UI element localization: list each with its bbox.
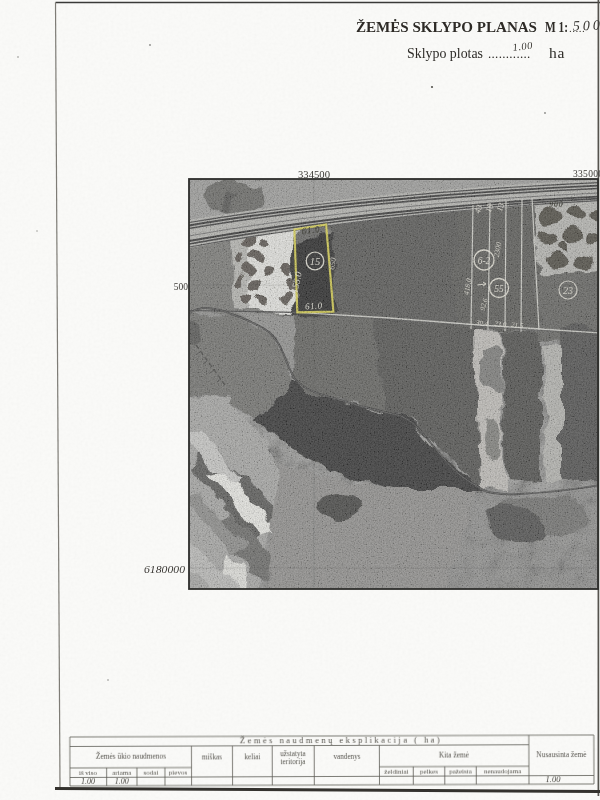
svg-text:Žemės naudmenų eksplikacija (: Žemės naudmenų eksplikacija ( ha) xyxy=(240,735,440,746)
svg-text:1.00: 1.00 xyxy=(81,777,95,786)
svg-text:vandenys: vandenys xyxy=(333,753,360,761)
svg-text:keliai: keliai xyxy=(244,753,260,761)
svg-text:ariama: ariama xyxy=(112,769,132,777)
svg-text:sodai: sodai xyxy=(144,769,159,777)
svg-text:ŽEMĖS SKLYPO PLANAS: ŽEMĖS SKLYPO PLANAS xyxy=(356,19,537,35)
svg-text:ha: ha xyxy=(549,44,565,61)
svg-text:pievos: pievos xyxy=(169,769,188,777)
svg-text:Nusausinta žemė: Nusausinta žemė xyxy=(536,750,587,759)
svg-text:pažeista: pažeista xyxy=(449,767,472,775)
svg-text:Sklypo plotas: Sklypo plotas xyxy=(407,45,483,61)
svg-text:iš viso: iš viso xyxy=(79,769,98,777)
svg-text:pelkes: pelkes xyxy=(420,768,438,776)
svg-text:1.00: 1.00 xyxy=(546,774,562,784)
svg-text:M 1:: M 1: xyxy=(545,19,568,35)
svg-text:teritorija: teritorija xyxy=(281,758,307,766)
svg-text:miškas: miškas xyxy=(202,753,222,761)
svg-text:500: 500 xyxy=(174,282,189,292)
svg-text:500: 500 xyxy=(573,17,600,33)
svg-text:1.00: 1.00 xyxy=(115,777,129,786)
svg-text:nenaudojama: nenaudojama xyxy=(484,767,522,775)
svg-text:užstatyta: užstatyta xyxy=(280,750,306,758)
svg-text:želdiniai: želdiniai xyxy=(384,768,408,776)
svg-text:334500: 334500 xyxy=(298,170,330,180)
svg-text:6180000: 6180000 xyxy=(144,564,186,575)
svg-text:Žemės ūkio naudmenos: Žemės ūkio naudmenos xyxy=(96,751,166,761)
svg-text:Kita žemė: Kita žemė xyxy=(439,750,470,759)
svg-text:335000: 335000 xyxy=(573,169,600,179)
